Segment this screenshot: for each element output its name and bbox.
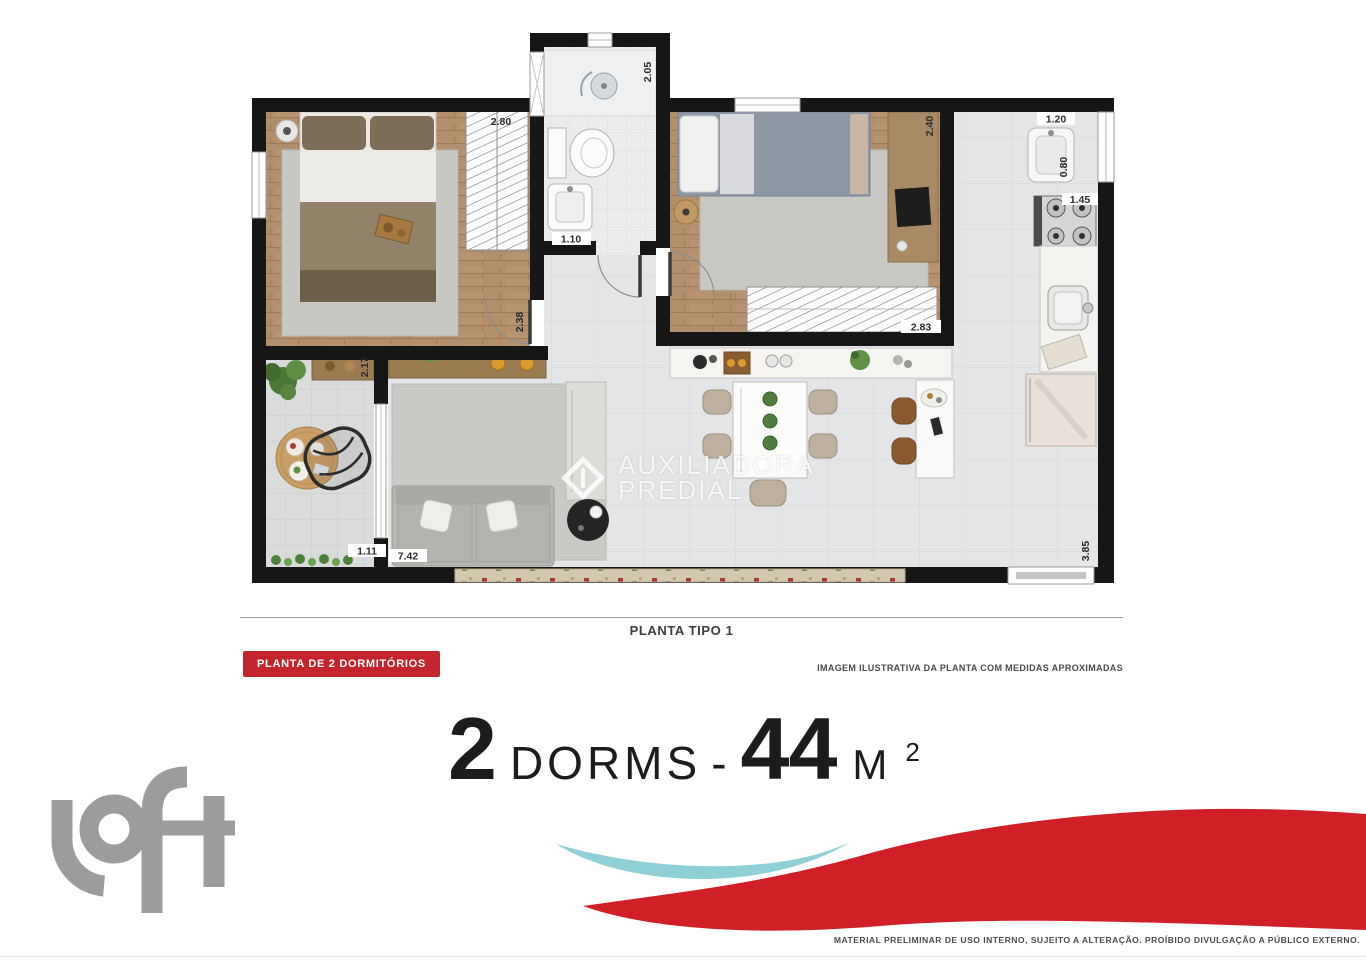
terrace-planter-icon: [455, 569, 905, 582]
area-unit: M: [852, 741, 888, 788]
floor-plan-sheet: 2.80 2.05 1.10 2.38 2.40 2.83 1.20 0.80 …: [0, 0, 1366, 962]
area-unit-exponent: 2: [905, 737, 920, 767]
dim-stove-label: 1.45: [1070, 194, 1091, 206]
dim-laundry-depth-label: 0.80: [1058, 157, 1070, 178]
dim-closet2-label: 2.83: [911, 322, 932, 334]
dim-terrace-depth-label: 2.17: [359, 357, 371, 378]
bar-stool-icon: [892, 398, 916, 424]
logo-letter-f: [152, 777, 187, 913]
pillow-icon: [486, 500, 518, 532]
footer-disclaimer: MATERIAL PRELIMINAR DE USO INTERNO, SUJE…: [834, 935, 1360, 945]
kettle-icon: [893, 355, 903, 365]
decor-dot: [590, 506, 602, 518]
window-icon: [252, 152, 266, 218]
dim-kitchen-depth-label: 3.85: [1080, 541, 1092, 562]
tv-rack-icon: [566, 382, 606, 500]
floor-plan-graphic: 2.80 2.05 1.10 2.38 2.40 2.83 1.20 0.80 …: [0, 0, 1366, 962]
lamp-icon: [283, 127, 291, 135]
brand-wave: [556, 809, 1366, 931]
decor-dot-small: [578, 525, 584, 531]
summary-title: 2DORMS-44M2: [448, 698, 920, 800]
dim-laundry-width-label: 1.20: [1046, 114, 1067, 126]
dorms-label: DORMS: [510, 737, 701, 789]
window-icon: [1098, 112, 1114, 182]
kitchen-counter: [1040, 246, 1098, 372]
dim-terrace-width-label: 1.11: [357, 546, 377, 558]
area-value: 44: [741, 699, 837, 798]
title-separator: -: [711, 737, 726, 789]
dim-bedroom2-label: 2.40: [924, 116, 936, 137]
faucet-icon: [1083, 303, 1093, 313]
shower-glass-icon: [530, 52, 544, 116]
fridge-icon: [1026, 374, 1096, 446]
loft-logo: loft: [62, 777, 235, 913]
dorms-count: 2: [448, 699, 496, 798]
window-icon: [735, 98, 800, 112]
pillow-icon: [419, 499, 452, 532]
plant-leaf: [851, 351, 859, 359]
cooktop-dot: [709, 355, 717, 363]
round-coffee-table-icon: [567, 499, 609, 541]
small-item: [904, 360, 912, 368]
bowl-icon: [780, 355, 792, 367]
kitchen-counter-strip: [670, 348, 952, 378]
logo-letter-o: [89, 804, 139, 854]
plan-note: IMAGEM ILUSTRATIVA DA PLANTA COM MEDIDAS…: [240, 663, 1123, 673]
plan-caption: PLANTA TIPO 1: [240, 623, 1123, 638]
single-bed-icon: [678, 112, 870, 196]
bowl-icon: [766, 355, 778, 367]
toilet-icon: [548, 128, 614, 178]
sliding-door-icon: [376, 404, 386, 538]
dim-living-width-label: 7.42: [398, 551, 419, 563]
bottom-hairline: [0, 956, 1366, 957]
double-bed-icon: [300, 112, 436, 302]
dim-shower-label: 2.05: [642, 62, 654, 83]
dim-bedroom1-door-label: 2.38: [514, 312, 526, 333]
dim-bath-label: 1.10: [561, 234, 582, 246]
closet1-icon: [466, 110, 528, 250]
cooktop-icon: [693, 355, 707, 369]
bar-stool-icon: [892, 438, 916, 464]
window-icon: [588, 33, 612, 47]
wood-box-icon: [724, 352, 750, 374]
shower-drain: [601, 83, 607, 89]
bathroom-sink-icon: [548, 184, 592, 230]
dim-closet1-label: 2.80: [491, 116, 512, 128]
table-dot: [683, 209, 690, 216]
kitchen-sliding-door-icon: [1008, 567, 1094, 584]
divider-line: [240, 617, 1123, 618]
